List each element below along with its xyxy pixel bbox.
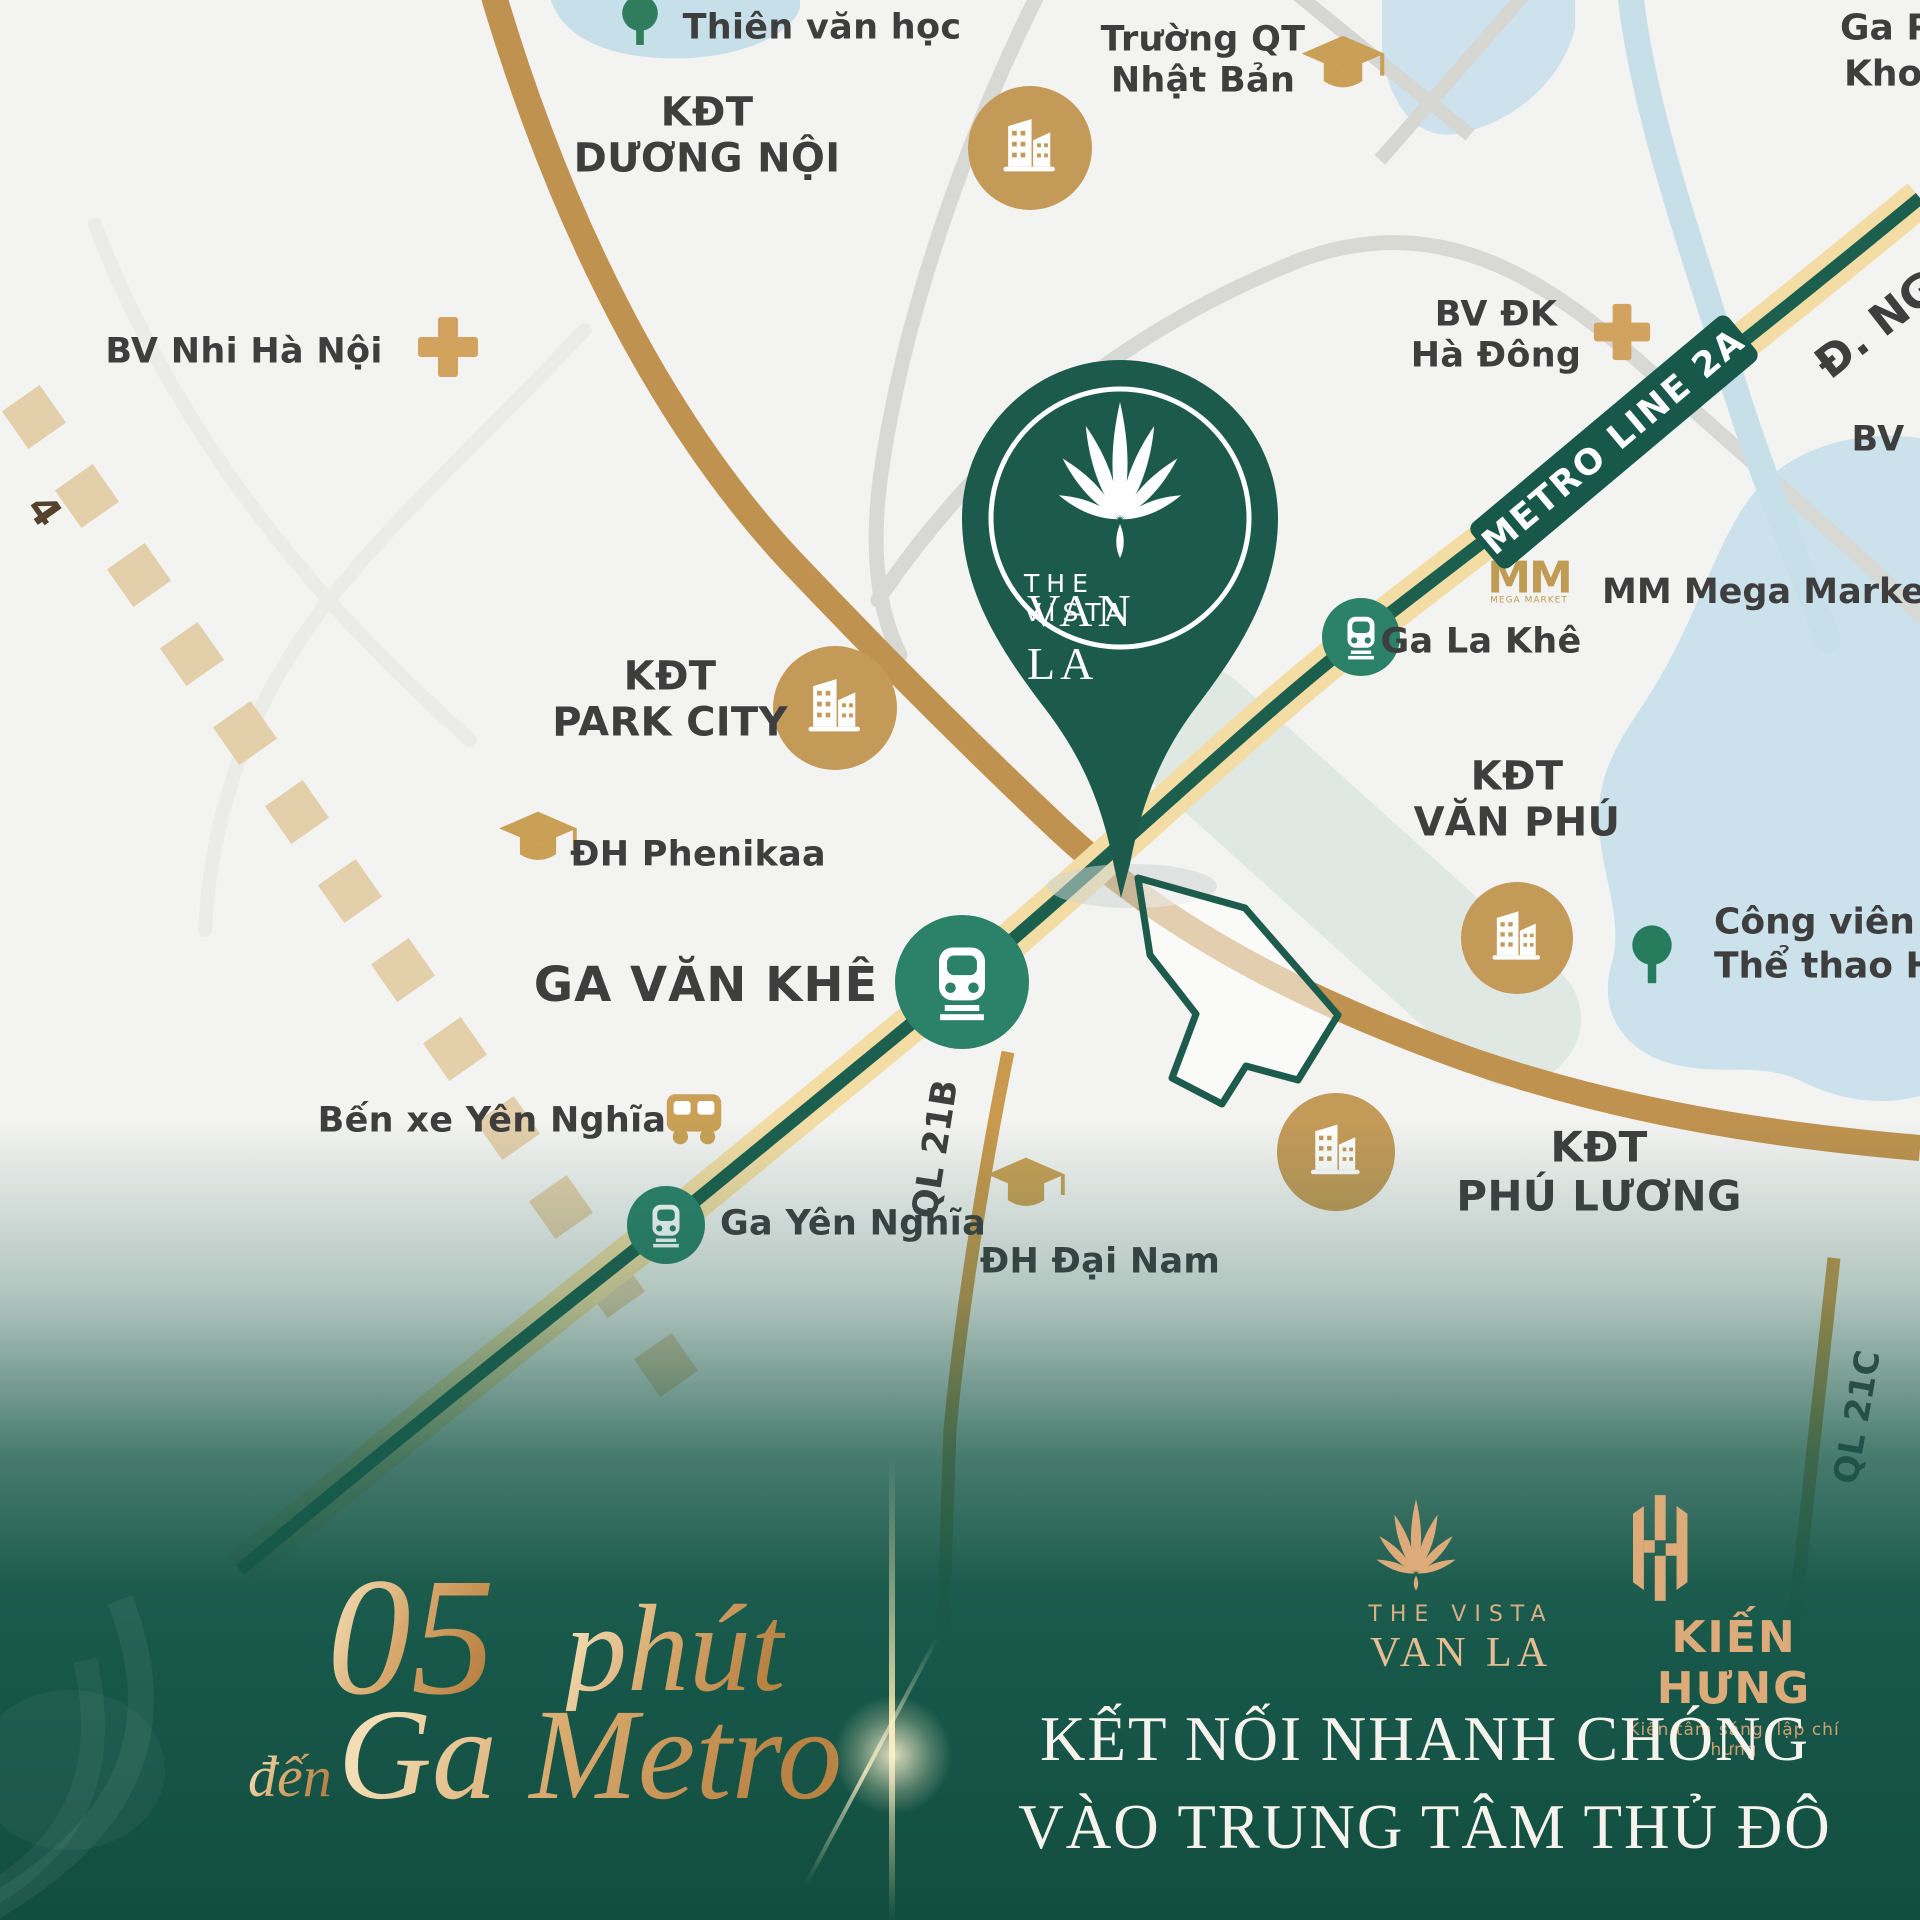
label-kdt-duong-noi-line1: KĐT	[574, 90, 841, 136]
slogan-line2: VÀO TRUNG TÂM THỦ ĐÔ	[950, 1790, 1900, 1866]
kien-hung-monogram-icon	[1614, 1492, 1708, 1604]
vista-logo-line2: VAN LA	[1341, 1629, 1581, 1677]
label-cong-vien-line1: Công viên	[1714, 902, 1915, 943]
slogan: KẾT NỐI NHANH CHÓNG VÀO TRUNG TÂM THỦ ĐÔ	[950, 1702, 1900, 1865]
label-bv-nhi-ha-noi: BV Nhi Hà Nội	[105, 332, 382, 373]
pin-title-line2: VAN LA	[1027, 584, 1209, 690]
label-kdt-van-phu-line2: VĂN PHÚ	[1414, 800, 1621, 846]
label-kdt-park-city: KĐT PARK CITY	[552, 654, 788, 747]
label-kdt-park-city-line2: PARK CITY	[552, 700, 788, 746]
label-kdt-van-phu: KĐT VĂN PHÚ	[1414, 754, 1621, 847]
label-kdt-park-city-line1: KĐT	[552, 654, 788, 700]
building-icon	[773, 646, 897, 770]
graduation-cap-icon	[496, 809, 580, 871]
label-ga-la-khe: Ga La Khê	[1380, 622, 1581, 663]
label-bv-dk-line1: BV ĐK	[1411, 294, 1582, 335]
graduation-cap-icon	[1299, 33, 1387, 99]
label-dh-phenikaa: ĐH Phenikaa	[570, 835, 826, 876]
label-bv-cut: BV	[1852, 420, 1905, 461]
label-bv-dk-line2: Hà Đông	[1411, 335, 1582, 376]
label-truong-qt-line2: Nhật Bản	[1101, 60, 1306, 101]
building-icon	[1461, 882, 1573, 994]
hospital-cross-icon	[416, 315, 480, 379]
vista-logo: THE VISTA VAN LA	[1341, 1496, 1581, 1677]
train-icon	[895, 915, 1029, 1049]
tree-icon	[614, 0, 666, 50]
label-kdt-duong-noi: KĐT DƯƠNG NỘI	[574, 90, 841, 183]
label-truong-qt-line1: Trường QT	[1101, 19, 1306, 60]
label-mm-mega-market: MM Mega Market	[1602, 572, 1920, 612]
lotus-icon	[1341, 1496, 1491, 1592]
hospital-cross-icon	[1592, 302, 1652, 362]
label-ga-van-khe: GA VĂN KHÊ	[534, 958, 879, 1014]
label-bv-dk-ha-dong: BV ĐK Hà Đông	[1411, 294, 1582, 375]
headline-destination: Ga Metro	[338, 1690, 842, 1820]
tree-icon	[1623, 924, 1681, 986]
label-truong-qt-nhat-ban: Trường QT Nhật Bản	[1101, 19, 1306, 100]
light-flare-icon	[889, 1460, 895, 1920]
lake-right	[1599, 436, 1920, 1101]
light-flare-glow-icon	[833, 1695, 953, 1815]
mm-glyph-sub: MEGA MARKET	[1487, 596, 1571, 606]
building-icon	[968, 86, 1092, 210]
label-ga-phung-line2: Khoa	[1844, 54, 1920, 95]
vista-logo-line1: THE VISTA	[1341, 1602, 1581, 1627]
label-ga-phung-line1: Ga Ph	[1840, 8, 1920, 49]
headline-to-word: đến	[248, 1748, 332, 1806]
project-pin-icon: THE VISTA VAN LA	[940, 340, 1300, 920]
poster-canvas: MM MEGA MARKET	[0, 0, 1920, 1920]
slogan-line1: KẾT NỐI NHANH CHÓNG	[950, 1702, 1900, 1778]
label-thien-van-hoc: Thiên văn học	[683, 8, 962, 49]
label-kdt-duong-noi-line2: DƯƠNG NỘI	[574, 136, 841, 182]
kien-hung-name: KIẾN HƯNG	[1614, 1612, 1854, 1714]
label-kdt-van-phu-line1: KĐT	[1414, 754, 1621, 800]
label-cong-vien-line2: Thể thao Hà	[1714, 946, 1920, 987]
